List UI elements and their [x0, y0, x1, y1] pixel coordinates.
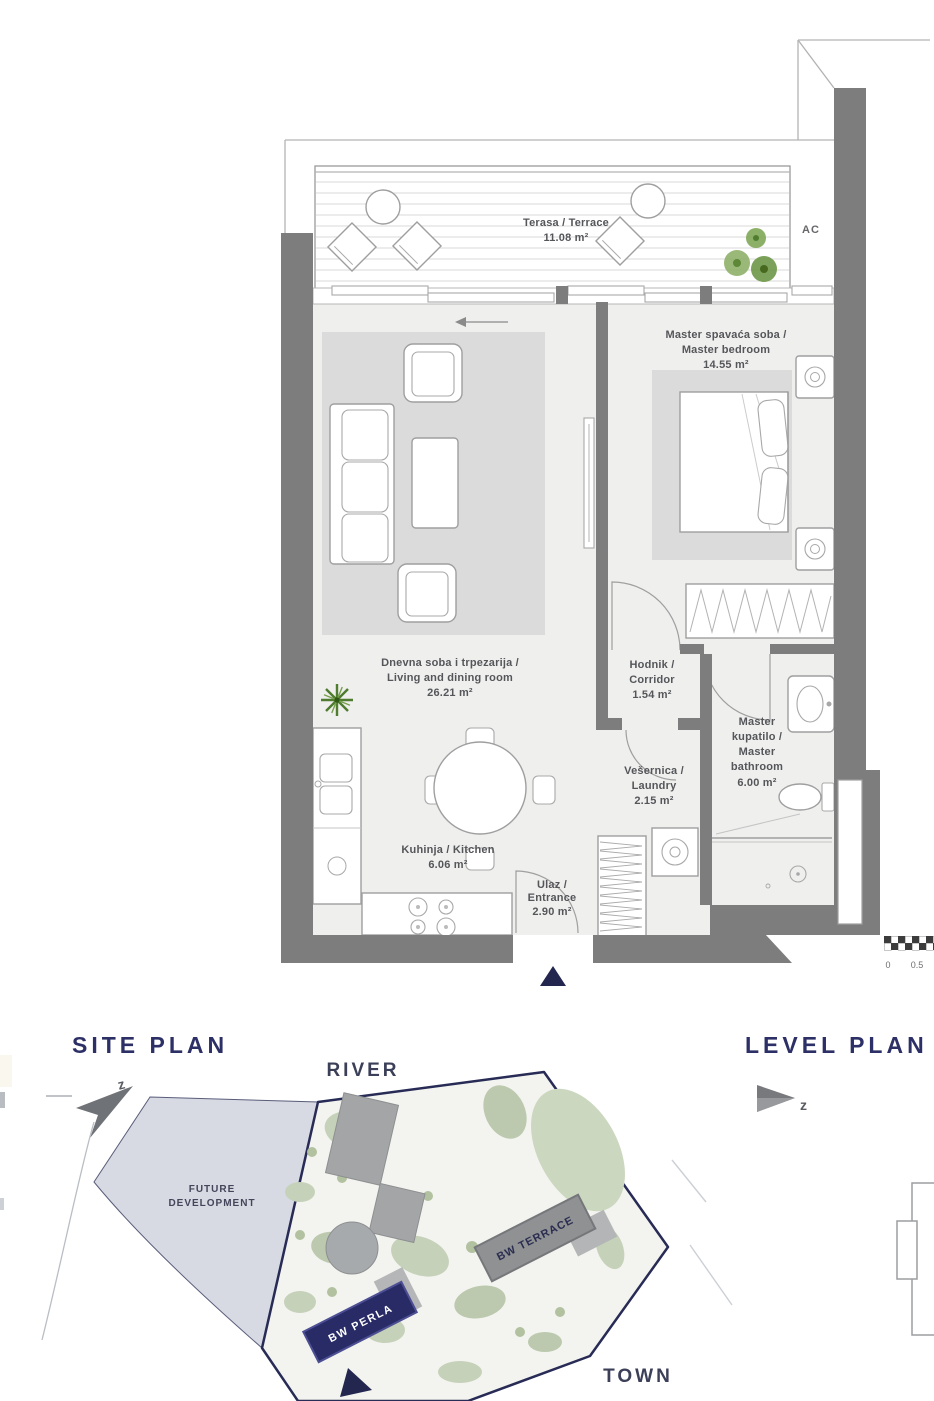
living-name-2: Living and dining room [387, 672, 513, 684]
town-label: TOWN [603, 1366, 673, 1387]
terrace-name: Terasa / Terrace [523, 217, 609, 229]
road-lines-right [672, 1160, 732, 1305]
river-label: RIVER [326, 1060, 399, 1081]
corridor-name-2: Corridor [629, 674, 675, 686]
entrance-name-2: Entrance [528, 892, 577, 904]
bathroom-name-3: Master [739, 746, 776, 758]
entrance-area: 2.90 m² [532, 906, 571, 918]
level-north-label: z [800, 1097, 807, 1113]
coffee-table [412, 438, 458, 528]
bathroom-sink [788, 676, 834, 732]
future-dev-label-1: FUTURE [189, 1184, 236, 1195]
edge-artifact [0, 1198, 4, 1210]
ac-label: AC [802, 224, 820, 236]
entrance-marker-triangle [540, 966, 566, 986]
scale-label-05: 0.5 [911, 960, 924, 970]
edge-artifact [0, 1055, 12, 1087]
kitchen-counter-bottom-stove [362, 893, 512, 936]
kitchen-counter-left [313, 728, 361, 904]
site-plan: SITE PLAN z RIVER TOWN FUTURE DEVELOPMEN… [0, 1032, 732, 1401]
site-plan-title: SITE PLAN [72, 1032, 228, 1058]
washing-machine [652, 828, 698, 876]
scale-bar: 0 0.5 [884, 936, 934, 970]
armchair-bottom [398, 564, 456, 622]
bedroom-name-2: Master bedroom [682, 344, 770, 356]
corridor-area: 1.54 m² [632, 689, 671, 701]
armchair-top [404, 344, 462, 402]
bathroom-name-4: bathroom [731, 761, 783, 773]
living-name-1: Dnevna soba i trpezarija / [381, 657, 519, 669]
hall-closet-shelves [598, 836, 646, 936]
site-north-arrow: z [46, 1076, 133, 1138]
tv-unit-living [584, 418, 594, 548]
kitchen-area: 6.06 m² [428, 859, 467, 871]
terrace-area: 11.08 m² [543, 232, 588, 244]
bathroom-area: 6.00 m² [737, 777, 776, 789]
laundry-name-1: Vešernica / [624, 765, 684, 777]
corridor: Hodnik / Corridor 1.54 m² [629, 659, 675, 701]
level-plan-title: LEVEL PLAN [745, 1032, 928, 1058]
bedroom-name-1: Master spavaća soba / [666, 329, 787, 341]
sofa [330, 404, 394, 564]
level-north-arrow: z [757, 1085, 807, 1113]
terrace-table-2 [631, 184, 665, 218]
terrace: Terasa / Terrace 11.08 m² [315, 166, 790, 290]
living-area: 26.21 m² [427, 687, 473, 699]
floor-plan: Terasa / Terrace 11.08 m² AC [281, 40, 934, 986]
bedroom-area: 14.55 m² [703, 359, 749, 371]
level-plan: LEVEL PLAN z [745, 1032, 934, 1335]
scale-label-0: 0 [885, 960, 890, 970]
nightstand-bottom [796, 528, 834, 570]
corridor-name-1: Hodnik / [630, 659, 675, 671]
edge-artifact [0, 1092, 5, 1108]
wardrobe [686, 584, 834, 638]
laundry-name-2: Laundry [632, 780, 677, 792]
main-parcel: BW TERRACE BW PERLA [262, 1072, 668, 1401]
window-band [313, 286, 834, 304]
kitchen-name: Kuhinja / Kitchen [401, 844, 494, 856]
future-dev-label-2: DEVELOPMENT [168, 1198, 255, 1209]
terrace-table-1 [366, 190, 400, 224]
road-curve [42, 1122, 94, 1340]
site-north-label: z [116, 1076, 127, 1093]
bed [680, 392, 789, 532]
level-plan-partial-diagram [897, 1183, 934, 1335]
entrance-name-1: Ulaz / [537, 879, 567, 891]
laundry-area: 2.15 m² [634, 795, 673, 807]
bathroom-name-2: kupatilo / [732, 731, 782, 743]
toilet [779, 783, 834, 811]
bathroom-name-1: Master [739, 716, 776, 728]
nightstand-top [796, 356, 834, 398]
